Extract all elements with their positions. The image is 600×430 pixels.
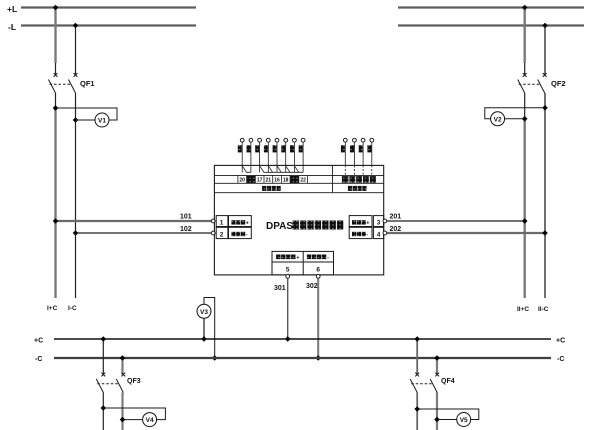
svg-text:+: + [246, 220, 249, 226]
svg-text:301: 301 [274, 285, 286, 292]
svg-text:QF1: QF1 [80, 79, 95, 88]
svg-text:V3: V3 [200, 309, 208, 316]
svg-text:-: - [246, 232, 248, 238]
svg-text:V2: V2 [494, 116, 502, 123]
svg-text:17: 17 [257, 178, 263, 184]
svg-text:101: 101 [180, 214, 192, 221]
svg-text:+L: +L [7, 4, 17, 14]
svg-text:5: 5 [286, 267, 290, 274]
svg-text:102: 102 [180, 226, 192, 233]
svg-text:22: 22 [300, 178, 306, 184]
svg-text:3: 3 [377, 220, 381, 227]
svg-text:16: 16 [274, 178, 280, 184]
svg-text:-: - [327, 255, 329, 261]
svg-text:V4: V4 [146, 417, 154, 424]
svg-text:2: 2 [220, 232, 224, 239]
svg-text:DPAS: DPAS [266, 221, 293, 232]
svg-text:+: + [296, 255, 299, 261]
svg-text:302: 302 [306, 283, 318, 290]
svg-text:202: 202 [390, 226, 402, 233]
svg-text:20: 20 [239, 178, 245, 184]
svg-text:QF2: QF2 [551, 79, 566, 88]
svg-text:+: + [366, 220, 369, 226]
svg-text:V5: V5 [460, 417, 468, 424]
svg-text:V1: V1 [98, 118, 106, 125]
svg-text:4: 4 [377, 232, 381, 239]
svg-text:-C: -C [35, 356, 42, 363]
svg-text:II-C: II-C [538, 306, 549, 313]
svg-text:-: - [366, 232, 368, 238]
svg-text:+C: +C [34, 338, 43, 345]
svg-text:+C: +C [556, 338, 565, 345]
svg-text:21: 21 [266, 178, 272, 184]
svg-text:201: 201 [390, 214, 402, 221]
svg-text:QF3: QF3 [127, 378, 141, 385]
svg-text:I+C: I+C [47, 305, 58, 312]
svg-text:-C: -C [557, 356, 564, 363]
svg-text:QF4: QF4 [441, 378, 455, 385]
svg-text:I-C: I-C [68, 305, 77, 312]
svg-text:18: 18 [283, 178, 289, 184]
svg-text:6: 6 [316, 267, 320, 274]
svg-text:-L: -L [8, 22, 16, 32]
svg-text:1: 1 [220, 220, 224, 227]
svg-text:II+C: II+C [517, 306, 529, 313]
